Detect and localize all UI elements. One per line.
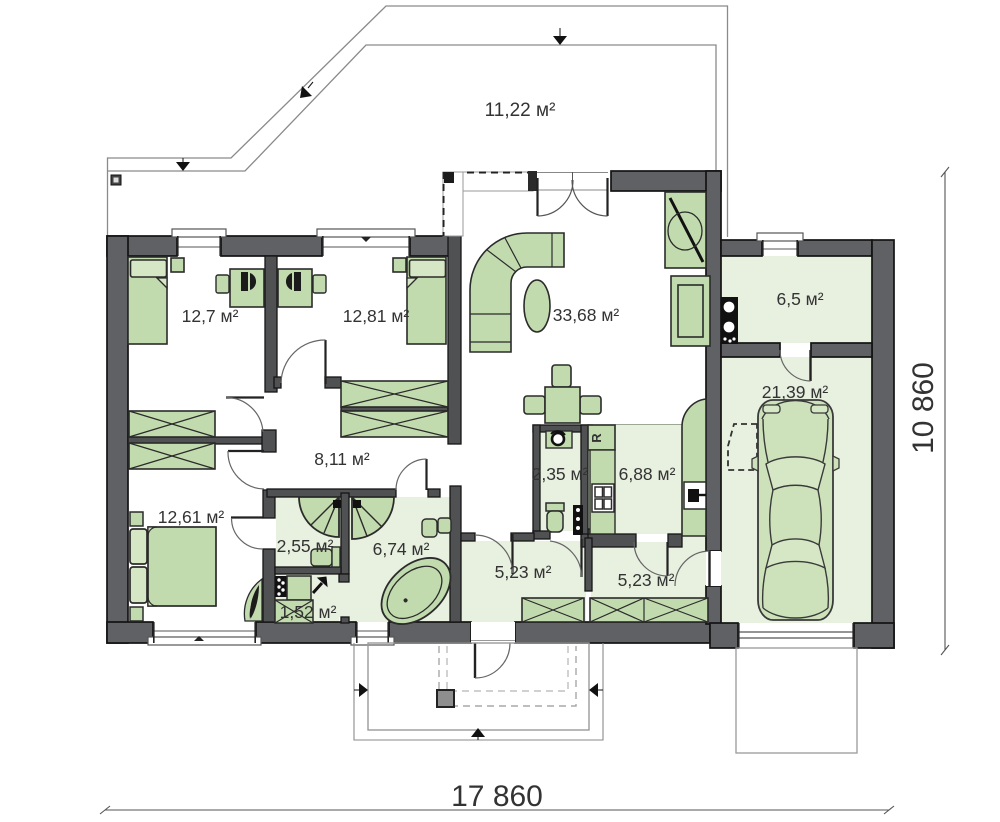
svg-text:11,22 м²: 11,22 м² [485, 100, 556, 121]
svg-text:33,68 м²: 33,68 м² [553, 305, 620, 325]
svg-text:R: R [589, 433, 604, 443]
svg-text:5,23 м²: 5,23 м² [618, 570, 675, 590]
svg-text:2,35 м²: 2,35 м² [532, 464, 589, 484]
svg-text:6,74 м²: 6,74 м² [373, 539, 430, 559]
svg-text:10 860: 10 860 [907, 362, 940, 454]
svg-text:5,23 м²: 5,23 м² [495, 562, 552, 582]
svg-text:12,7 м²: 12,7 м² [182, 306, 239, 326]
svg-text:6,88 м²: 6,88 м² [619, 464, 676, 484]
svg-text:21,39 м²: 21,39 м² [762, 382, 829, 402]
svg-text:2,55 м²: 2,55 м² [277, 536, 334, 556]
svg-text:17 860: 17 860 [451, 780, 543, 813]
svg-text:12,61 м²: 12,61 м² [158, 507, 225, 527]
svg-text:6,5 м²: 6,5 м² [776, 289, 823, 309]
svg-text:8,11 м²: 8,11 м² [314, 449, 370, 469]
svg-text:12,81 м²: 12,81 м² [343, 306, 410, 326]
svg-text:1,52 м²: 1,52 м² [280, 602, 337, 622]
